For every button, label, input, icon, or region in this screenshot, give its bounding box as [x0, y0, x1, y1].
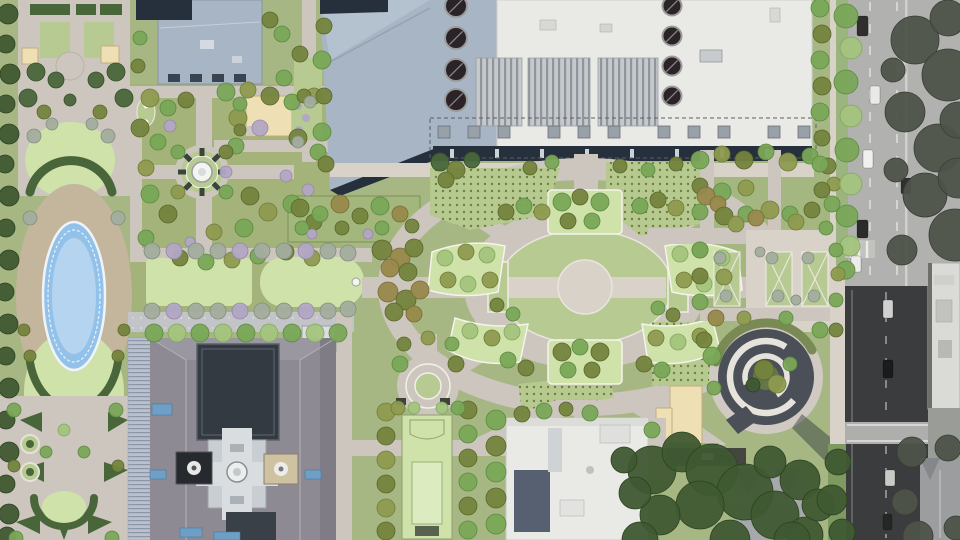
roof-vent — [663, 0, 682, 16]
tree-canopy — [340, 301, 356, 317]
tree-canopy — [459, 473, 477, 491]
tree-canopy — [138, 160, 154, 176]
tree-canopy — [641, 163, 655, 177]
tree-canopy — [591, 193, 609, 211]
tree-canopy — [811, 51, 829, 69]
tree-canopy — [707, 381, 721, 395]
tree-canopy — [48, 72, 64, 88]
tree-canopy — [813, 25, 831, 43]
tree-canopy — [672, 246, 688, 262]
tree-canopy — [737, 311, 751, 325]
tree-canopy — [560, 362, 576, 378]
west-steps — [128, 338, 152, 540]
tree-canopy — [437, 250, 453, 266]
tree-canopy — [23, 211, 37, 225]
tree-canopy — [779, 153, 797, 171]
tree-canopy — [408, 402, 420, 414]
tree-canopy — [840, 105, 862, 127]
car — [883, 360, 893, 378]
tree-canopy — [791, 295, 801, 305]
tree-canopy — [486, 436, 506, 456]
tree-canopy — [363, 229, 373, 239]
tree-canopy — [486, 488, 506, 508]
tree-canopy — [619, 477, 651, 509]
tree-canopy — [88, 72, 104, 88]
tree-canopy — [118, 324, 130, 336]
tree-canopy — [219, 185, 233, 199]
tree-canopy — [840, 173, 862, 195]
tree-canopy — [808, 290, 820, 302]
tree-canopy — [160, 100, 176, 116]
tree-canopy — [825, 449, 851, 475]
tree-canopy — [514, 406, 530, 422]
tree-canopy — [748, 210, 764, 226]
tree-canopy — [210, 243, 226, 259]
tree-canopy — [115, 89, 133, 107]
tree-canopy — [131, 59, 145, 73]
tree-canopy — [811, 103, 829, 121]
tree-canopy — [0, 283, 14, 301]
tree-canopy — [836, 205, 858, 227]
tree-canopy — [381, 259, 399, 277]
column-capital — [768, 126, 780, 138]
capitol-building — [128, 338, 336, 540]
tree-canopy — [490, 298, 504, 312]
tree-canopy — [812, 322, 828, 338]
tree-canopy — [352, 208, 368, 224]
tree-canopy — [486, 514, 506, 534]
tree-canopy — [240, 82, 256, 98]
tree-canopy — [188, 303, 204, 319]
tree-canopy — [144, 303, 160, 319]
tree-canopy — [19, 89, 37, 107]
tree-canopy — [406, 306, 422, 322]
tree-canopy — [235, 219, 253, 237]
tree-canopy — [648, 330, 664, 346]
tree-canopy — [0, 155, 14, 173]
tree-canopy — [298, 243, 314, 259]
tree-canopy — [405, 239, 423, 257]
tree-canopy — [484, 330, 500, 346]
site-plan-stage: Campus landscape master plan — aerial re… — [0, 0, 960, 540]
tree-canopy — [460, 276, 476, 292]
tree-canopy — [0, 314, 18, 334]
tree-canopy — [0, 124, 19, 144]
tree-canopy — [107, 63, 125, 81]
tree-canopy — [145, 324, 163, 342]
tree-canopy — [316, 88, 332, 104]
tree-canopy — [58, 424, 70, 436]
tree-canopy — [670, 334, 686, 350]
tree-canopy — [819, 221, 833, 235]
tree-canopy — [783, 357, 797, 371]
tree-canopy — [306, 324, 324, 342]
tree-canopy — [692, 268, 708, 284]
tree-canopy — [292, 136, 304, 148]
car — [863, 150, 873, 168]
skylight-band — [528, 58, 590, 126]
tree-canopy — [884, 158, 908, 182]
dark-roof-section — [136, 0, 192, 20]
column-capital — [548, 126, 560, 138]
tree-canopy — [0, 504, 19, 524]
tree-canopy — [421, 331, 435, 345]
tree-canopy — [817, 485, 847, 515]
tree-canopy — [191, 324, 209, 342]
tree-canopy — [584, 362, 600, 378]
tree-canopy — [451, 401, 465, 415]
column-capital — [468, 126, 480, 138]
tree-canopy — [133, 31, 147, 45]
column-capital — [798, 126, 810, 138]
tree-canopy — [313, 123, 331, 141]
tree-canopy — [728, 216, 744, 232]
tree-canopy — [298, 303, 314, 319]
tree-canopy — [0, 219, 15, 237]
tree-canopy — [276, 303, 292, 319]
tree-canopy — [405, 219, 419, 233]
tree-canopy — [232, 303, 248, 319]
tree-canopy — [0, 95, 15, 113]
tree-canopy — [692, 294, 708, 310]
tree-canopy — [411, 281, 429, 299]
tree-canopy — [714, 252, 726, 264]
skylight-band — [476, 58, 522, 126]
tree-canopy — [666, 308, 680, 322]
tree-canopy — [458, 244, 474, 260]
tree-canopy — [391, 401, 405, 415]
tree-canopy — [377, 475, 395, 493]
tree-canopy — [340, 245, 356, 261]
tree-canopy — [668, 200, 684, 216]
tree-canopy — [536, 403, 552, 419]
column-capital — [578, 126, 590, 138]
tree-canopy — [46, 118, 58, 130]
car — [870, 86, 880, 104]
tree-canopy — [935, 435, 960, 461]
column-capital — [438, 126, 450, 138]
tree-canopy — [0, 64, 20, 84]
column-capital — [658, 126, 670, 138]
tree-canopy — [834, 70, 858, 94]
tree-canopy — [8, 460, 20, 472]
tree-canopy — [885, 92, 925, 132]
car — [857, 16, 868, 36]
tree-canopy — [166, 243, 182, 259]
tree-canopy — [835, 138, 859, 162]
tree-canopy — [754, 446, 786, 478]
tree-canopy — [164, 120, 176, 132]
tree-canopy — [651, 301, 665, 315]
tree-canopy — [375, 221, 389, 235]
tree-canopy — [109, 403, 123, 417]
tree-canopy — [584, 213, 600, 229]
tree-canopy — [516, 198, 532, 214]
tree-canopy — [261, 87, 279, 105]
column-capital — [688, 126, 700, 138]
tree-canopy — [814, 130, 830, 146]
tree-canopy — [27, 129, 41, 143]
tree-canopy — [397, 337, 411, 351]
tree-canopy — [788, 214, 804, 230]
garden-pavilion-east — [101, 46, 119, 63]
tree-canopy — [159, 205, 177, 223]
tree-canopy — [459, 425, 477, 443]
tree-canopy — [112, 350, 124, 362]
tree-canopy — [313, 51, 331, 69]
tree-canopy — [312, 206, 328, 222]
tree-canopy — [276, 243, 292, 259]
tree-canopy — [438, 172, 454, 188]
tree-canopy — [669, 157, 683, 171]
tree-canopy — [464, 152, 480, 168]
arcade-shadow — [433, 146, 812, 161]
tree-canopy — [462, 323, 478, 339]
tree-canopy — [385, 303, 403, 321]
tree-canopy — [259, 203, 277, 221]
tree-canopy — [378, 282, 398, 302]
tree-canopy — [274, 26, 290, 42]
tree-canopy — [206, 224, 222, 240]
tree-canopy — [232, 243, 248, 259]
tree-canopy — [840, 236, 860, 256]
tree-canopy — [241, 187, 259, 205]
tree-canopy — [814, 182, 830, 198]
center-circle-plaza — [558, 260, 612, 314]
tree-canopy — [459, 497, 477, 515]
tree-canopy — [829, 323, 843, 337]
tree-canopy — [131, 119, 149, 137]
tree-canopy — [703, 347, 721, 365]
tree-canopy — [141, 89, 159, 107]
tree-canopy — [37, 105, 51, 119]
tree-canopy — [482, 272, 498, 288]
tree-canopy — [101, 129, 115, 143]
tree-canopy — [262, 12, 278, 28]
tree-canopy — [553, 343, 571, 361]
tree-canopy — [831, 267, 845, 281]
tree-canopy — [304, 96, 316, 108]
tree-canopy — [302, 184, 314, 196]
tree-canopy — [27, 63, 45, 81]
tree-canopy — [716, 269, 732, 285]
tree-canopy — [276, 70, 292, 86]
tree-canopy — [504, 324, 520, 340]
tree-canopy — [335, 221, 349, 235]
tree-canopy — [168, 324, 186, 342]
tree-canopy — [24, 350, 36, 362]
tree-canopy — [166, 303, 182, 319]
tree-canopy — [486, 410, 506, 430]
tree-canopy — [217, 83, 235, 101]
tree-canopy — [329, 324, 347, 342]
tree-canopy — [613, 159, 627, 173]
tree-canopy — [897, 437, 927, 467]
tree-canopy — [644, 422, 660, 438]
tree-canopy — [234, 124, 246, 136]
tree-canopy — [696, 332, 712, 348]
tree-canopy — [237, 324, 255, 342]
tree-canopy — [78, 446, 90, 458]
column-capital — [498, 126, 510, 138]
tree-canopy — [371, 197, 389, 215]
tree-canopy — [377, 427, 395, 445]
tree-canopy — [178, 92, 194, 108]
tree-canopy — [735, 151, 753, 169]
roof-courtyard — [197, 344, 279, 440]
tree-canopy — [445, 337, 459, 351]
tree-canopy — [260, 324, 278, 342]
tree-canopy — [708, 310, 724, 326]
tree-canopy — [811, 0, 829, 17]
tree-canopy — [0, 378, 19, 398]
tree-canopy — [320, 243, 336, 259]
tree-canopy — [252, 120, 268, 136]
tree-canopy — [650, 192, 666, 208]
tree-canopy — [392, 356, 408, 372]
skylight-band — [598, 58, 658, 126]
tree-canopy — [307, 229, 317, 239]
tree-canopy — [283, 324, 301, 342]
tree-canopy — [692, 242, 708, 258]
tree-canopy — [331, 195, 349, 213]
tree-canopy — [0, 475, 15, 493]
tree-canopy — [214, 324, 232, 342]
tree-canopy — [572, 339, 588, 355]
tree-canopy — [518, 360, 534, 376]
tree-canopy — [523, 161, 537, 175]
tree-canopy — [188, 243, 204, 259]
tree-canopy — [766, 252, 778, 264]
tree-canopy — [254, 303, 270, 319]
aerial-master-plan: Campus landscape master plan — aerial re… — [0, 0, 960, 540]
tree-canopy — [0, 250, 19, 270]
tree-canopy — [141, 185, 159, 203]
tree-canopy — [714, 146, 730, 162]
tree-canopy — [233, 97, 247, 111]
tree-canopy — [887, 235, 917, 265]
tree-canopy — [829, 243, 843, 257]
tree-canopy — [64, 94, 76, 106]
tree-canopy — [779, 311, 793, 325]
tree-canopy — [676, 481, 724, 529]
tree-canopy — [459, 449, 477, 467]
car — [857, 220, 868, 238]
tree-canopy — [892, 489, 918, 515]
tree-canopy — [0, 442, 19, 462]
tree-canopy — [144, 243, 160, 259]
tree-canopy — [486, 462, 506, 482]
tree-canopy — [210, 303, 226, 319]
lawn-fountain-dot — [352, 278, 360, 286]
tree-canopy — [804, 202, 820, 218]
tree-canopy — [813, 77, 831, 95]
car — [883, 300, 893, 318]
tree-canopy — [40, 446, 52, 458]
tree-canopy — [171, 185, 185, 199]
tree-canopy — [0, 4, 18, 24]
tree-canopy — [572, 189, 588, 205]
tree-canopy — [219, 145, 233, 159]
tree-canopy — [834, 4, 858, 28]
tree-canopy — [150, 134, 166, 150]
tree-canopy — [372, 240, 392, 260]
tree-canopy — [399, 263, 417, 281]
tree-canopy — [254, 243, 270, 259]
tree-canopy — [692, 204, 708, 220]
tree-canopy — [316, 18, 332, 34]
tree-canopy — [440, 272, 456, 288]
tree-canopy — [611, 447, 637, 473]
tree-canopy — [500, 352, 516, 368]
roof-vent — [445, 0, 467, 17]
tree-canopy — [768, 375, 786, 393]
tree-canopy — [292, 46, 308, 62]
tree-canopy — [691, 151, 709, 169]
tree-canopy — [220, 166, 232, 178]
tree-canopy — [829, 293, 843, 307]
garden-pavilion-west — [22, 48, 38, 64]
tree-canopy — [545, 155, 559, 169]
tree-canopy — [840, 37, 862, 59]
tree-canopy — [377, 499, 395, 517]
tree-canopy — [632, 198, 648, 214]
tree-canopy — [772, 290, 784, 302]
tree-canopy — [591, 343, 609, 361]
tree-canopy — [738, 180, 754, 196]
tree-canopy — [755, 247, 765, 257]
tree-canopy — [582, 405, 598, 421]
tree-canopy — [498, 204, 514, 220]
tree-canopy — [318, 156, 334, 172]
tree-canopy — [560, 213, 576, 229]
tree-canopy — [0, 186, 19, 206]
tree-canopy — [392, 206, 408, 222]
tree-canopy — [720, 290, 732, 302]
tree-canopy — [111, 211, 125, 225]
car — [885, 470, 895, 486]
tree-canopy — [881, 58, 905, 82]
tree-canopy — [7, 403, 21, 417]
tree-canopy — [746, 378, 760, 392]
tree-canopy — [18, 324, 30, 336]
tree-canopy — [112, 460, 124, 472]
tree-canopy — [812, 156, 828, 172]
tree-canopy — [377, 451, 395, 469]
dark-roof-section — [514, 470, 550, 532]
tree-canopy — [377, 522, 395, 540]
tree-canopy — [436, 402, 448, 414]
tree-canopy — [654, 362, 670, 378]
column-capital — [608, 126, 620, 138]
tree-canopy — [636, 356, 652, 372]
tree-canopy — [86, 118, 98, 130]
rooftop-unit — [700, 50, 722, 62]
tree-canopy — [93, 105, 107, 119]
tree-canopy — [553, 193, 571, 211]
tree-canopy — [479, 247, 495, 263]
tree-canopy — [320, 303, 336, 319]
tree-canopy — [559, 402, 573, 416]
tree-canopy — [0, 35, 15, 53]
tree-canopy — [431, 153, 449, 171]
tree-canopy — [171, 145, 185, 159]
tree-canopy — [448, 356, 464, 372]
column-capital — [718, 126, 730, 138]
tree-canopy — [291, 199, 309, 217]
tree-canopy — [506, 307, 520, 321]
navy-roof-strip — [320, 0, 388, 14]
